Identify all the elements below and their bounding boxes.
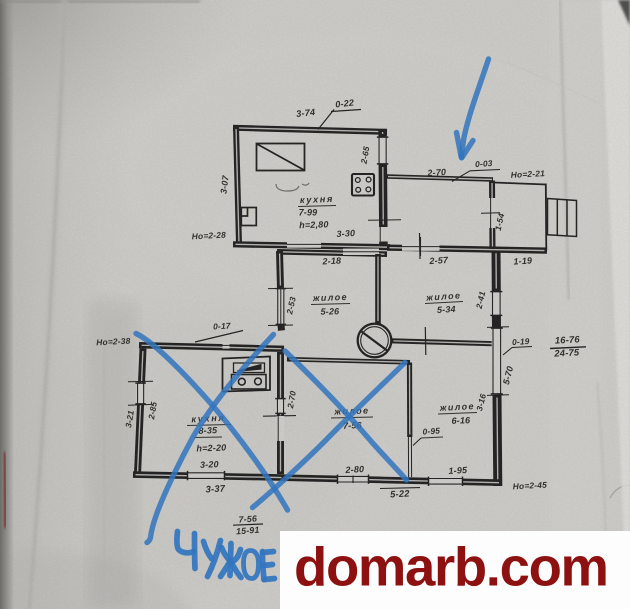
svg-text:domarb.com: domarb.com <box>294 537 608 598</box>
